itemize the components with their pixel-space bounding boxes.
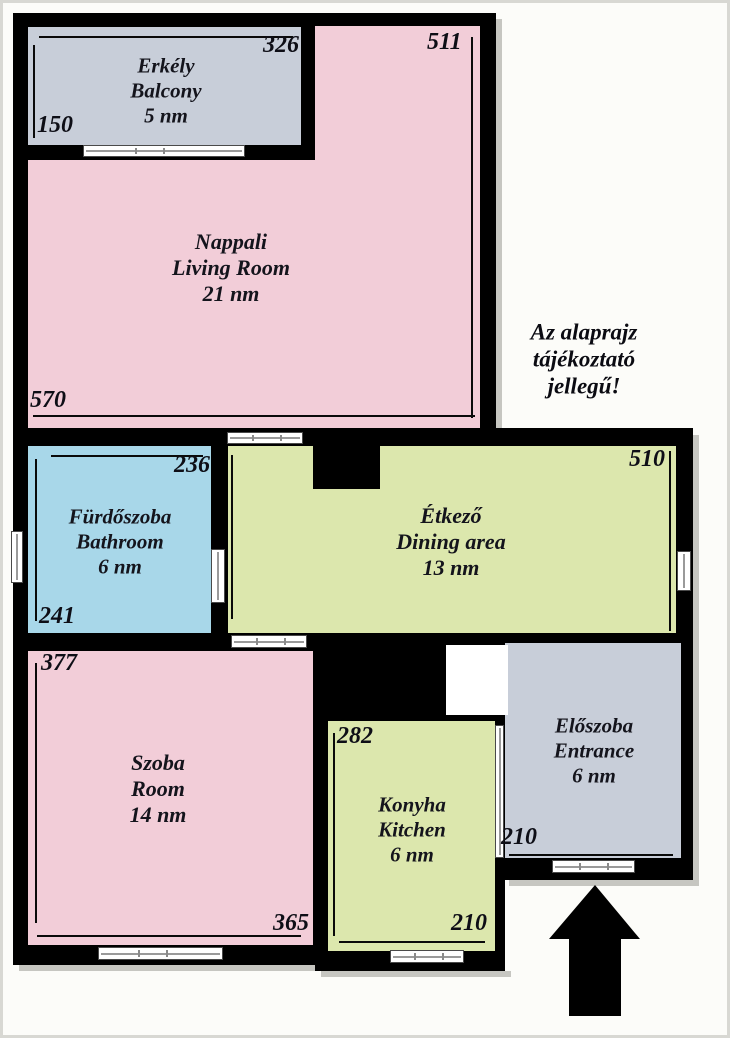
kitchen-area: 6 nm [378,843,446,868]
szoba-name-en: Room [130,776,187,802]
dimline-bathroom-height [35,459,37,621]
bathroom-door-icon [211,549,225,603]
dim-entrance-width: 210 [501,825,537,849]
dim-bathroom-width: 236 [158,453,210,477]
kitchen-name-hu: Konyha [378,793,446,818]
bathroom-label: Fürdőszoba Bathroom 6 nm [69,505,172,580]
dimline-entrance-width [509,854,673,856]
dimline-room-height [35,663,37,923]
dim-dining-width: 510 [629,447,665,471]
dim-kitchen-width: 210 [451,911,487,935]
living-name-hu: Nappali [172,229,290,255]
disclaimer-note: Az alaprajz tájékoztató jellegű! [531,319,638,400]
balcony-label: Erkély Balcony 5 nm [130,54,201,129]
entrance-name-hu: Előszoba [554,714,635,739]
dimline-dining-width [669,451,671,631]
dimline-living-height [471,37,473,418]
szoba-name-hu: Szoba [130,750,187,776]
shadow-bottom-kitchen [321,971,511,977]
balcony-name-en: Balcony [130,79,201,104]
shadow-right-mid [693,435,699,885]
dimline-living-width [33,415,475,417]
dim-kitchen-height: 282 [337,724,373,748]
dining-window-icon [677,551,691,591]
entrance-door-icon [552,860,635,873]
dining-name-en: Dining area [396,529,505,555]
dimline-balcony-depth [33,45,35,138]
dim-living-height: 511 [427,30,462,54]
dimline-dining-left [231,455,233,619]
bathroom-name-hu: Fürdőszoba [69,505,172,530]
living-area: 21 nm [172,281,290,307]
shadow-bottom-room [19,965,325,971]
entrance-area: 6 nm [554,764,635,789]
dimline-kitchen-height [333,733,335,936]
entrance-label: Előszoba Entrance 6 nm [554,714,635,789]
dining-name-hu: Étkező [396,503,505,529]
dining-room-window-icon [231,635,307,648]
entrance-arrow-icon [549,885,640,1016]
szoba-area: 14 nm [130,802,187,828]
dim-room-height: 377 [41,651,77,675]
disclaimer-line-2: tájékoztató [531,346,638,373]
dim-balcony-width: 326 [245,33,299,57]
bathroom-window-icon [11,531,23,583]
dining-label: Étkező Dining area 13 nm [396,503,505,581]
dimline-kitchen-width [339,941,485,943]
shadow-right-top [496,19,502,428]
szoba-label: Szoba Room 14 nm [130,750,187,828]
living-name-en: Living Room [172,255,290,281]
wall-dining-notch [313,446,380,489]
dim-living-width: 570 [30,388,66,412]
bathroom-area: 6 nm [69,555,172,580]
dim-balcony-depth: 150 [37,113,73,137]
shadow-bottom-entrance [509,880,699,886]
kitchen-name-en: Kitchen [378,818,446,843]
dimline-room-width [37,935,301,937]
door-opening-dining-entrance [446,645,508,715]
disclaimer-line-1: Az alaprajz [531,319,638,346]
dim-room-width: 365 [265,911,309,935]
balcony-name-hu: Erkély [130,54,201,79]
entrance-name-en: Entrance [554,739,635,764]
living-label: Nappali Living Room 21 nm [172,229,290,307]
kitchen-window-icon [390,950,464,963]
dim-bathroom-height: 241 [39,604,75,628]
floorplan: 326 150 511 570 236 241 510 377 365 282 … [0,0,730,1038]
living-dining-window-icon [227,432,303,444]
dining-area: 13 nm [396,555,505,581]
bathroom-name-en: Bathroom [69,530,172,555]
disclaimer-line-3: jellegű! [531,373,638,400]
kitchen-label: Konyha Kitchen 6 nm [378,793,446,868]
room-window-icon [98,947,223,960]
balcony-door-icon [83,145,245,157]
balcony-area: 5 nm [130,104,201,129]
